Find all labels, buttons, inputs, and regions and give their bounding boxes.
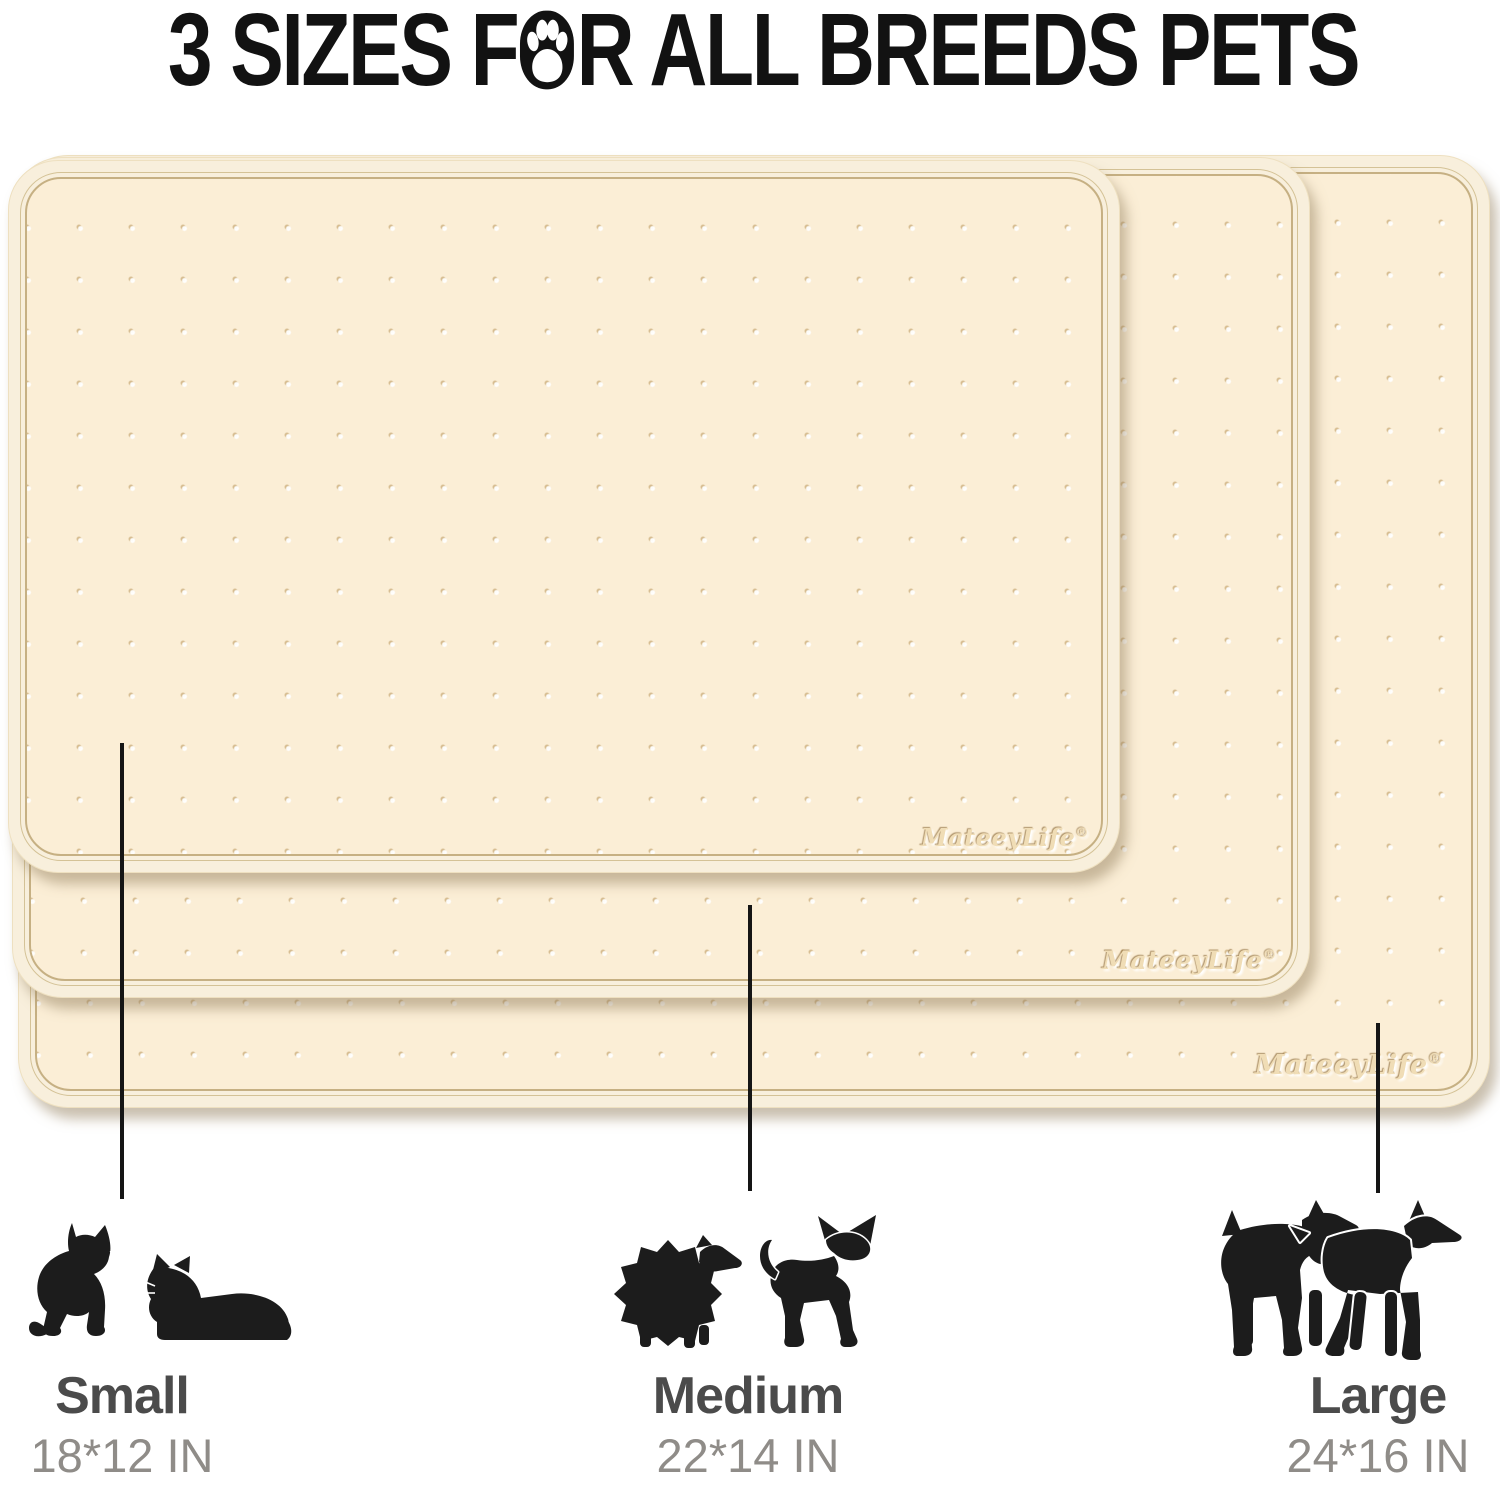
brand-logo-small: MateeyLife® bbox=[921, 823, 1089, 852]
title-segment-before: 3 SIZES F bbox=[168, 0, 518, 107]
size-dimensions-small: 18*12 IN bbox=[0, 1428, 272, 1483]
brand-logo-large: MateeyLife® bbox=[1255, 1050, 1443, 1081]
pomeranian-icon bbox=[604, 1230, 746, 1350]
mat-small-surface bbox=[25, 177, 1103, 856]
brand-name: MateeyLife bbox=[921, 823, 1075, 852]
callout-line-medium bbox=[748, 905, 752, 1191]
brand-name: MateeyLife bbox=[1102, 946, 1263, 975]
title-segment-after: R ALL BREEDS PETS bbox=[577, 0, 1359, 107]
paw-print-icon bbox=[519, 2, 575, 110]
chihuahua-icon bbox=[742, 1212, 882, 1348]
lying-cat-icon bbox=[142, 1252, 294, 1344]
brand-name: MateeyLife bbox=[1255, 1050, 1428, 1081]
product-infographic: 3 SIZES FR ALL BREEDS PETS MateeyLife® M… bbox=[0, 0, 1500, 1485]
callout-line-large bbox=[1376, 1023, 1380, 1193]
size-label-large: Large bbox=[1228, 1366, 1500, 1426]
page-title: 3 SIZES FR ALL BREEDS PETS bbox=[0, 0, 1500, 110]
page-title-text: 3 SIZES FR ALL BREEDS PETS bbox=[168, 0, 1358, 110]
callout-line-small bbox=[120, 743, 124, 1199]
size-dimensions-medium: 22*14 IN bbox=[598, 1428, 898, 1483]
size-dimensions-large: 24*16 IN bbox=[1228, 1428, 1500, 1483]
registered-mark: ® bbox=[1428, 1050, 1443, 1068]
mat-small: MateeyLife® bbox=[8, 160, 1120, 873]
doberman-icon bbox=[1282, 1198, 1467, 1363]
registered-mark: ® bbox=[1075, 826, 1089, 841]
size-label-small: Small bbox=[0, 1366, 272, 1426]
registered-mark: ® bbox=[1263, 948, 1277, 964]
sitting-cat-icon bbox=[26, 1218, 134, 1344]
size-label-medium: Medium bbox=[598, 1366, 898, 1426]
brand-logo-medium: MateeyLife® bbox=[1102, 946, 1277, 975]
